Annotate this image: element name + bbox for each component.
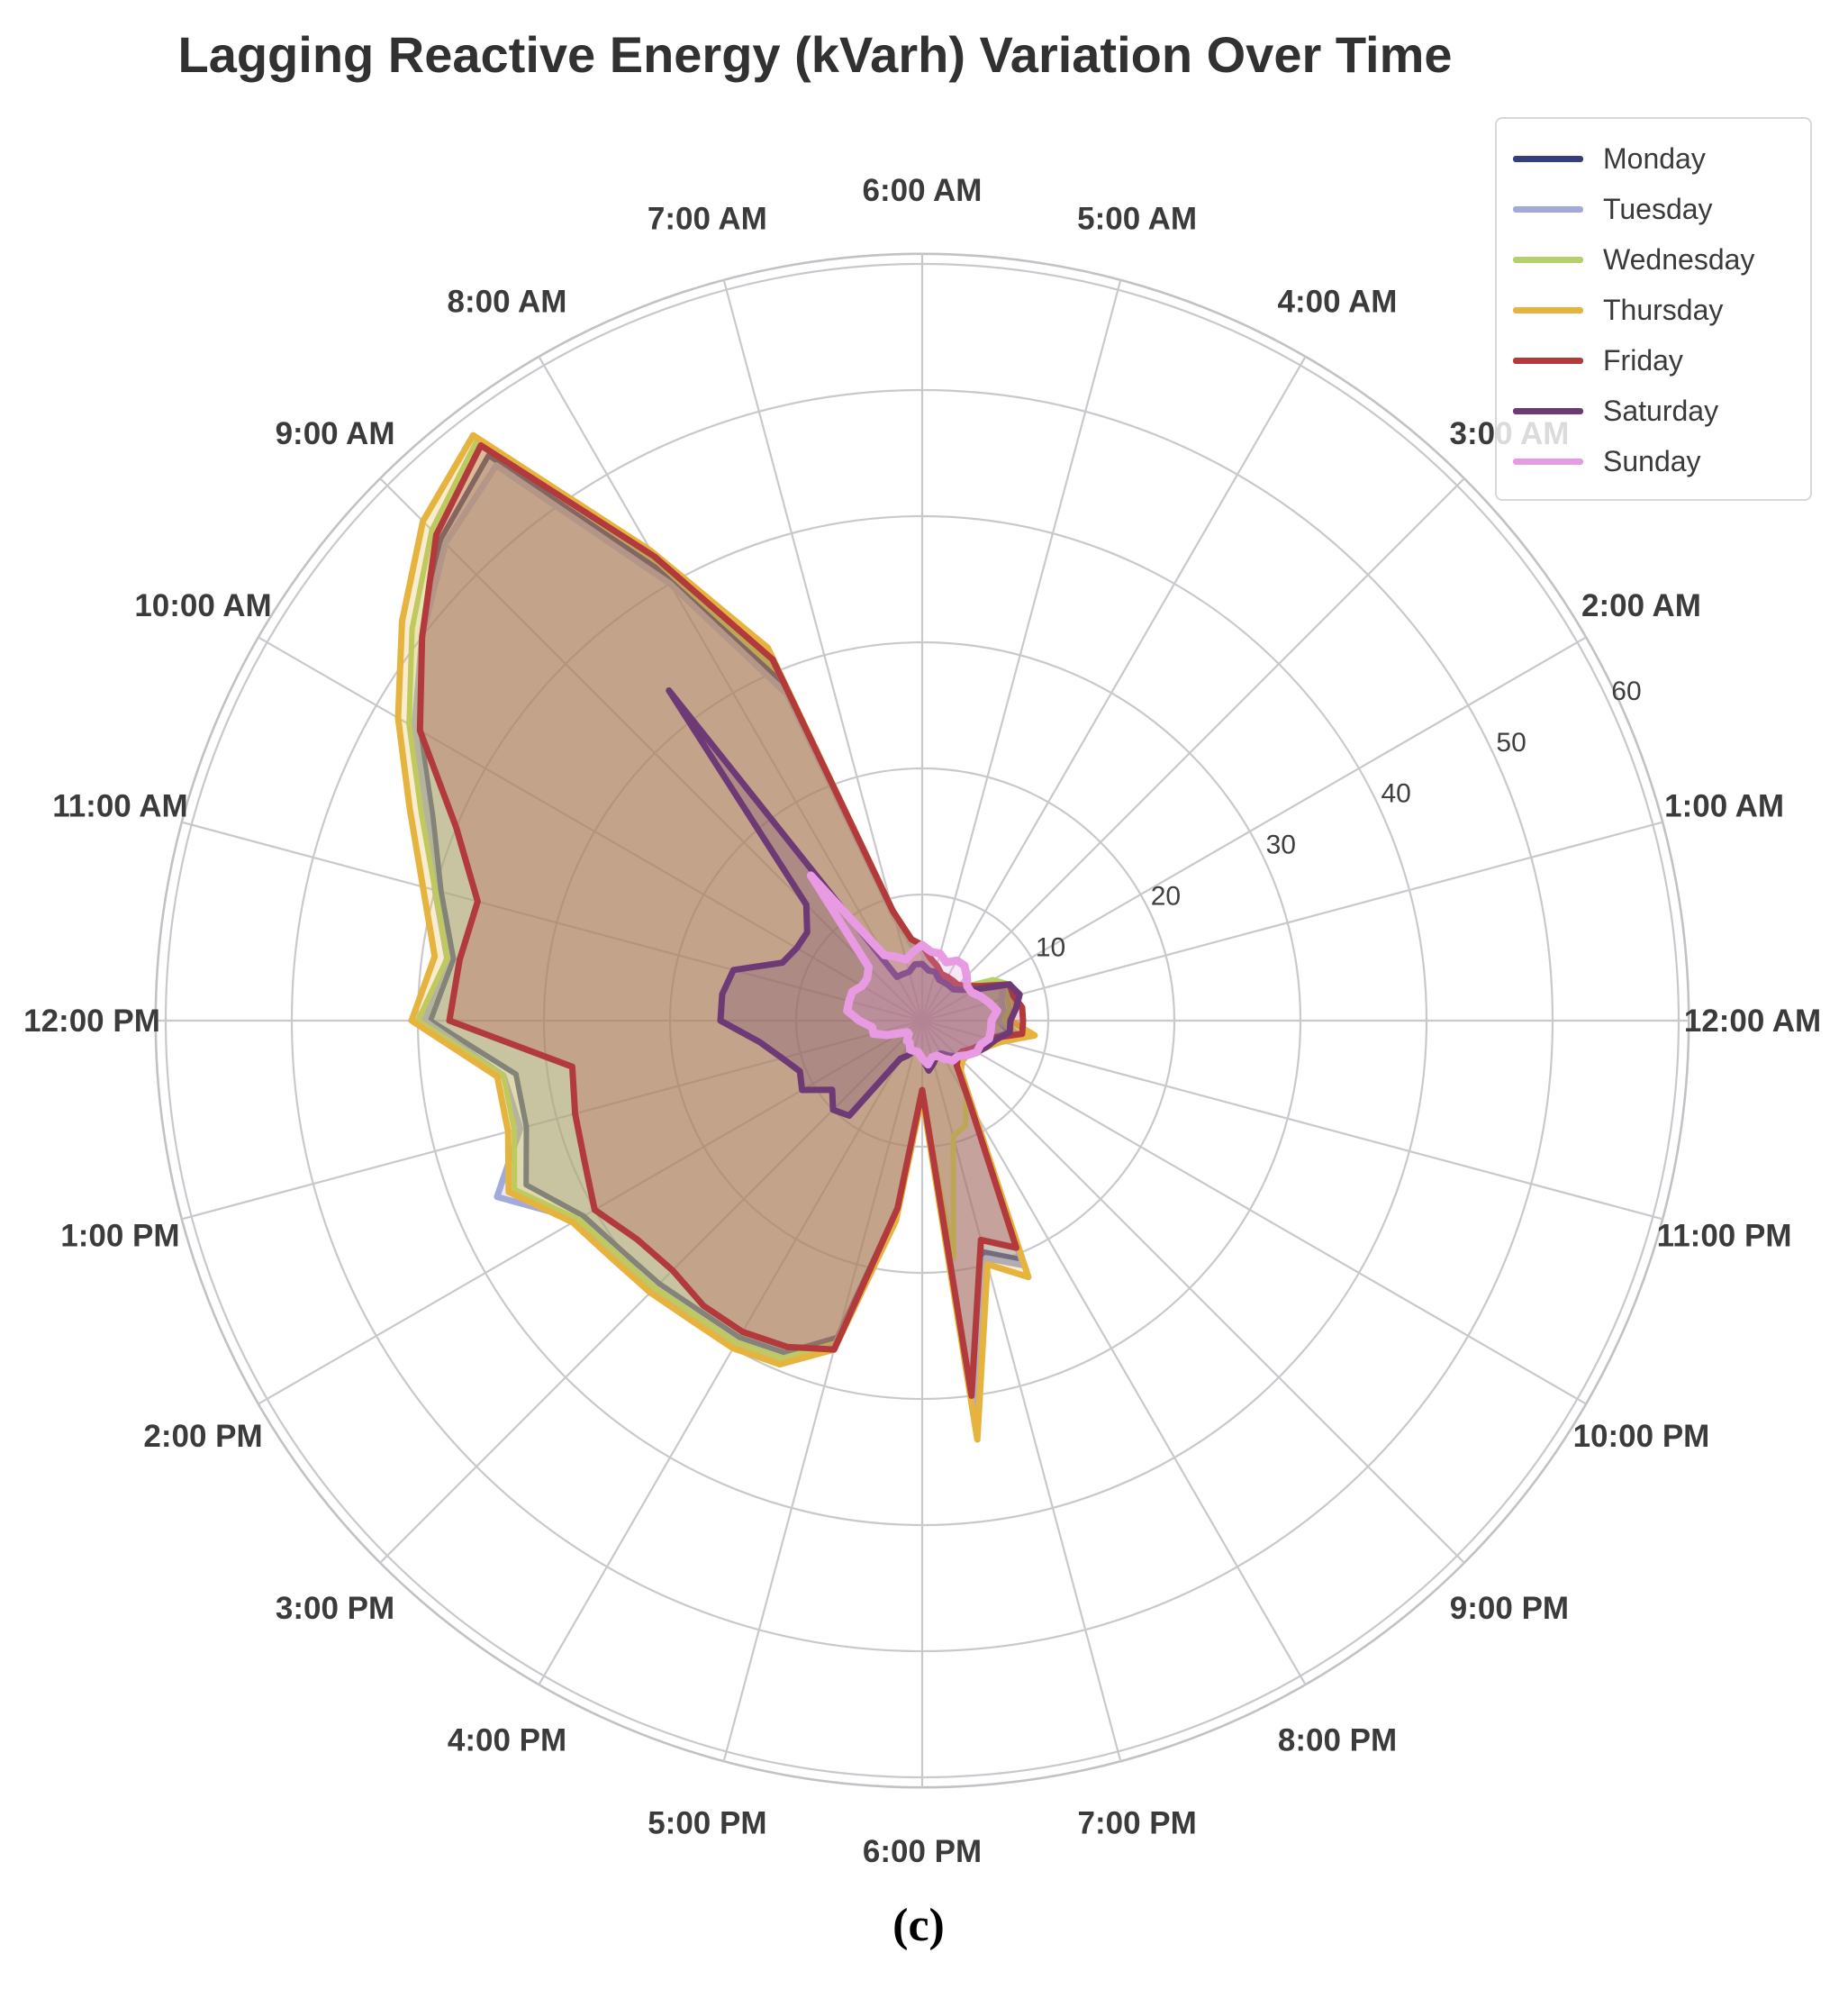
legend-label-sunday: Sunday — [1603, 445, 1701, 478]
legend-item-sunday: Sunday — [1513, 436, 1801, 486]
grid-spoke-3 — [922, 478, 1464, 1021]
grid-spoke-21 — [922, 1021, 1464, 1563]
legend-label-saturday: Saturday — [1603, 395, 1718, 428]
grid-spoke-22 — [922, 1021, 1586, 1404]
legend-item-friday: Friday — [1513, 335, 1801, 386]
legend-item-wednesday: Wednesday — [1513, 234, 1801, 285]
legend-label-monday: Monday — [1603, 142, 1706, 176]
hour-label-12-00-pm: 12:00 PM — [23, 1004, 160, 1039]
radial-tick-labels: 102030405060 — [1036, 677, 1642, 963]
hour-label-4-00-pm: 4:00 PM — [448, 1722, 566, 1757]
hour-label-7-00-am: 7:00 AM — [648, 201, 767, 236]
wednesday-line-swatch — [1513, 257, 1583, 263]
hour-label-2-00-pm: 2:00 PM — [143, 1419, 262, 1454]
hour-label-9-00-pm: 9:00 PM — [1450, 1591, 1569, 1626]
legend-label-thursday: Thursday — [1603, 294, 1723, 327]
hour-label-11-00-am: 11:00 AM — [52, 788, 187, 823]
hour-label-4-00-am: 4:00 AM — [1278, 285, 1398, 320]
tuesday-line-swatch — [1513, 206, 1583, 213]
hour-label-5-00-pm: 5:00 PM — [648, 1806, 766, 1841]
series-group — [398, 435, 1035, 1440]
legend-item-tuesday: Tuesday — [1513, 184, 1801, 234]
radial-tick-20: 20 — [1151, 882, 1181, 912]
hour-label-6-00-am: 6:00 AM — [863, 173, 983, 208]
saturday-line-swatch — [1513, 408, 1583, 414]
hour-label-2-00-am: 2:00 AM — [1581, 588, 1701, 623]
series-friday — [420, 445, 1023, 1395]
hour-label-8-00-am: 8:00 AM — [448, 285, 567, 320]
grid-spoke-2 — [922, 637, 1586, 1021]
friday-line-swatch — [1513, 358, 1583, 364]
hour-label-10-00-pm: 10:00 PM — [1573, 1419, 1710, 1454]
thursday-line-swatch — [1513, 307, 1583, 313]
legend: Monday Tuesday Wednesday Thursday Friday… — [1495, 117, 1812, 501]
hour-label-1-00-am: 1:00 AM — [1664, 788, 1784, 823]
hour-label-1-00-pm: 1:00 PM — [60, 1219, 179, 1254]
legend-item-saturday: Saturday — [1513, 386, 1801, 436]
legend-item-monday: Monday — [1513, 133, 1801, 184]
legend-label-wednesday: Wednesday — [1603, 243, 1754, 277]
hour-label-11-00-pm: 11:00 PM — [1657, 1219, 1792, 1254]
radial-tick-50: 50 — [1496, 728, 1526, 758]
polar-chart: Lagging Reactive Energy (kVarh) Variatio… — [0, 0, 1848, 1989]
hour-label-5-00-am: 5:00 AM — [1077, 201, 1197, 236]
grid-spoke-4 — [922, 357, 1306, 1021]
radial-tick-30: 30 — [1266, 831, 1296, 860]
hour-label-10-00-am: 10:00 AM — [134, 588, 271, 623]
monday-line-swatch — [1513, 156, 1583, 162]
legend-label-friday: Friday — [1603, 344, 1683, 377]
hour-label-7-00-pm: 7:00 PM — [1077, 1806, 1196, 1841]
radial-tick-60: 60 — [1611, 677, 1641, 706]
radial-tick-10: 10 — [1036, 933, 1065, 963]
hour-label-3-00-pm: 3:00 PM — [276, 1591, 394, 1626]
sunday-line-swatch — [1513, 459, 1583, 465]
legend-label-tuesday: Tuesday — [1603, 193, 1713, 226]
hour-label-9-00-am: 9:00 AM — [276, 416, 395, 451]
figure-caption: (c) — [892, 1899, 945, 1952]
hour-label-6-00-pm: 6:00 PM — [863, 1834, 982, 1869]
hour-label-8-00-pm: 8:00 PM — [1278, 1722, 1397, 1757]
radial-tick-40: 40 — [1381, 779, 1411, 809]
legend-item-thursday: Thursday — [1513, 285, 1801, 335]
hour-label-12-00-am: 12:00 AM — [1684, 1004, 1821, 1039]
